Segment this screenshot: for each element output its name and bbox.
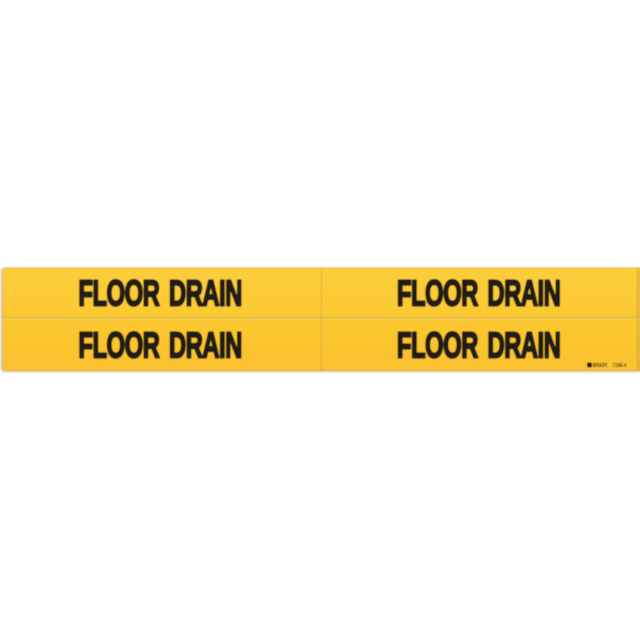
svg-text:FLOOR DRAIN: FLOOR DRAIN xyxy=(78,272,242,313)
svg-text:BRADY: BRADY xyxy=(593,363,608,369)
svg-text:FLOOR DRAIN: FLOOR DRAIN xyxy=(397,272,561,313)
svg-text:FLOOR DRAIN: FLOOR DRAIN xyxy=(397,325,561,366)
svg-text:FLOOR DRAIN: FLOOR DRAIN xyxy=(78,325,242,366)
svg-text:7106-4: 7106-4 xyxy=(613,363,627,369)
